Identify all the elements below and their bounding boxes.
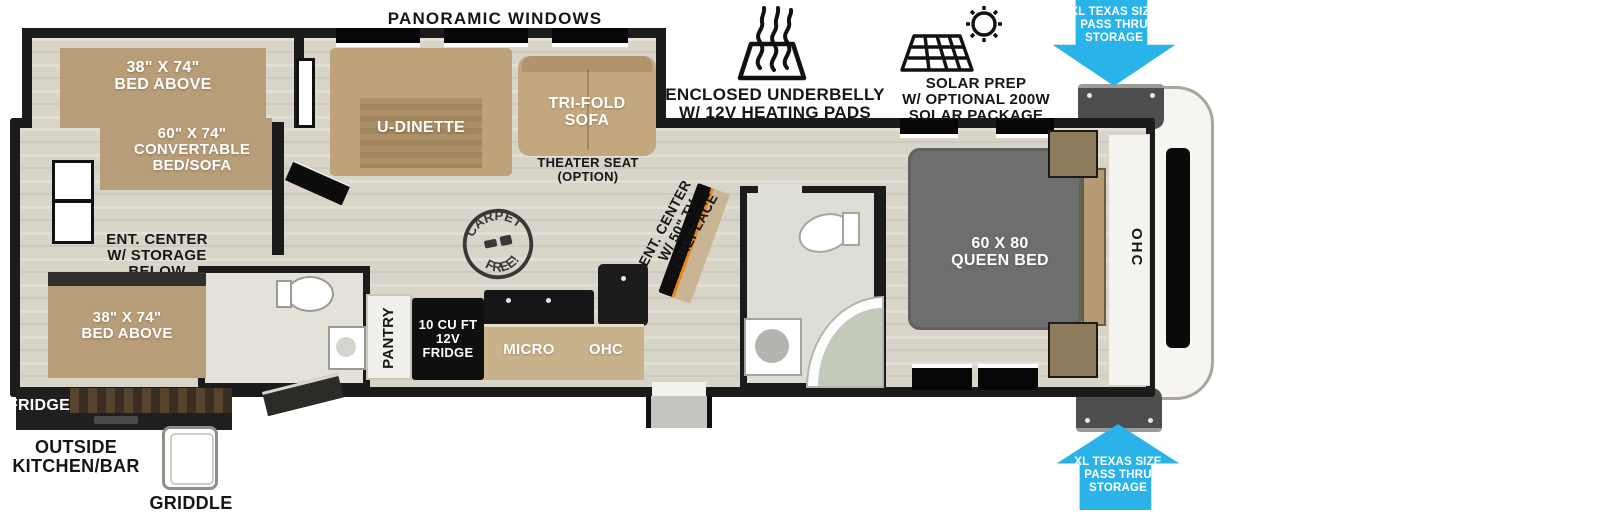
washer-icon (744, 318, 802, 376)
bedroom-window-icon (912, 364, 972, 390)
griddle-label: GRIDDLE (146, 494, 236, 513)
rear-room-window-icon (52, 160, 94, 244)
kitchen-fridge-label: 10 CU FT12VFRIDGE (412, 318, 484, 359)
pass-thru-arrow-down: XL TEXAS SIZE PASS THRU STORAGE (1050, 0, 1178, 86)
solar-label: SOLAR PREP W/ OPTIONAL 200W SOLAR PACKAG… (898, 76, 1054, 124)
bedroom-ohc-label: OHC (1112, 228, 1144, 267)
cooktop-icon (484, 290, 594, 328)
rear-sink-icon (328, 326, 366, 370)
floorplan-diagram: 38" X 74"BED ABOVE 60" X 74" CONVERTABLE… (0, 0, 1600, 525)
rear-toilet-icon (286, 276, 334, 312)
rear-divider-wall (272, 122, 284, 255)
toilet-tank (842, 212, 860, 246)
pantry-label: PANTRY (381, 291, 397, 385)
solar-panel-icon (900, 4, 1012, 76)
bunk-bottom-label: 38" X 74"BED ABOVE (48, 310, 206, 342)
slideout-window-icon (336, 28, 420, 47)
kitchen-ohc-label: OHC (578, 342, 634, 358)
rear-toilet-tank (276, 280, 292, 308)
u-dinette-label: U-DINETTE (340, 120, 502, 137)
theater-seat-label: THEATER SEAT(OPTION) (528, 156, 648, 184)
queen-bed-label: 60 X 80QUEEN BED (920, 236, 1080, 270)
headboard (1082, 168, 1106, 326)
rear-dresser (48, 272, 206, 286)
living-side-window-icon (296, 58, 315, 128)
panoramic-windows-label: PANORAMIC WINDOWS (350, 10, 640, 28)
micro-label: MICRO (494, 342, 564, 358)
slideout-window-icon (444, 28, 528, 47)
u-dinette (330, 48, 512, 176)
underbelly-label: ENCLOSED UNDERBELLYW/ 12V HEATING PADS (660, 86, 890, 122)
outside-kitchen-label: OUTSIDEKITCHEN/BAR (0, 438, 152, 476)
wardrobe-bottom (1048, 322, 1098, 378)
entry-step (646, 396, 712, 428)
outside-fridge-label: FRIDGE (4, 398, 74, 415)
bunk-top-label: 38" X 74"BED ABOVE (63, 60, 263, 94)
slideout-window-icon (552, 28, 628, 47)
griddle-icon (162, 426, 218, 490)
pass-thru-arrow-up: XL TEXAS SIZE PASS THRU STORAGE (1054, 424, 1182, 510)
bathroom-door-gap (758, 184, 802, 195)
tri-fold-sofa-label: TRI-FOLDSOFA (518, 96, 656, 130)
heat-pad-icon (724, 0, 820, 86)
bedroom-window-icon (978, 364, 1038, 390)
front-cap-window (1166, 148, 1190, 348)
carpet-free-stamp: CARPET FREE! (453, 199, 543, 289)
convertible-bed-label: 60" X 74" CONVERTABLE BED/SOFA (112, 126, 272, 174)
wardrobe-top (1048, 130, 1098, 178)
